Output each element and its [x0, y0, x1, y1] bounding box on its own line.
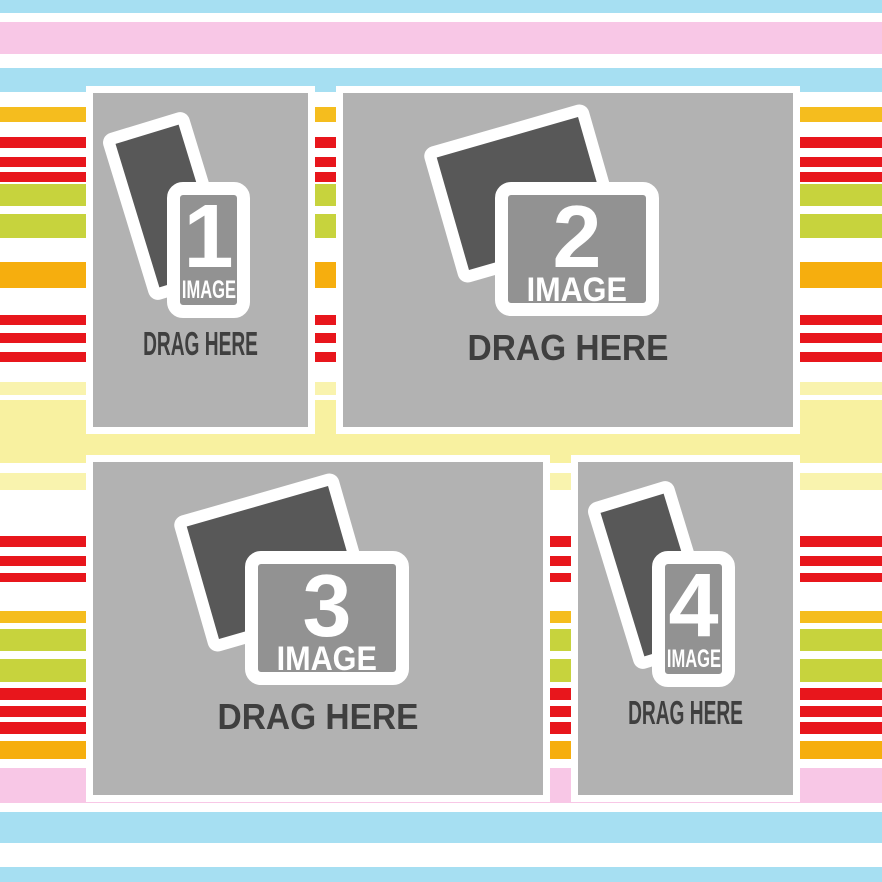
front-photo-card: 1 IMAGE: [167, 182, 250, 318]
background-stripe: [0, 0, 882, 13]
photo-stack-icon: 2 IMAGE: [343, 93, 793, 427]
image-slot-2[interactable]: 2 IMAGE DRAG HERE: [336, 86, 800, 434]
background-stripe: [0, 22, 882, 54]
drag-here-label: DRAG HERE: [359, 327, 778, 369]
drag-here-label: DRAG HERE: [623, 694, 748, 732]
slot-number: 4: [668, 568, 718, 644]
image-slot-3[interactable]: 3 IMAGE DRAG HERE: [86, 455, 550, 802]
photo-stack-icon: 4 IMAGE: [578, 462, 793, 795]
image-label: IMAGE: [277, 642, 377, 677]
background-stripe: [0, 867, 882, 882]
image-label: IMAGE: [527, 273, 627, 308]
slot-number: 1: [183, 199, 233, 275]
photo-stack-icon: 1 IMAGE: [93, 93, 308, 427]
slot-number: 2: [553, 201, 602, 273]
front-photo-card: 2 IMAGE: [495, 182, 659, 316]
front-photo-card: 3 IMAGE: [245, 551, 409, 685]
drag-here-label: DRAG HERE: [109, 696, 528, 738]
image-slot-4[interactable]: 4 IMAGE DRAG HERE: [571, 455, 800, 802]
image-slot-1[interactable]: 1 IMAGE DRAG HERE: [86, 86, 315, 434]
background-stripe: [0, 812, 882, 843]
image-label: IMAGE: [181, 277, 235, 303]
collage-template-canvas: 1 IMAGE DRAG HERE 2 IMAGE DRAG HERE 3 IM…: [0, 0, 882, 882]
slot-number: 3: [303, 570, 352, 642]
image-label: IMAGE: [666, 646, 720, 672]
front-photo-card: 4 IMAGE: [652, 551, 735, 687]
photo-stack-icon: 3 IMAGE: [93, 462, 543, 795]
drag-here-label: DRAG HERE: [138, 325, 263, 363]
